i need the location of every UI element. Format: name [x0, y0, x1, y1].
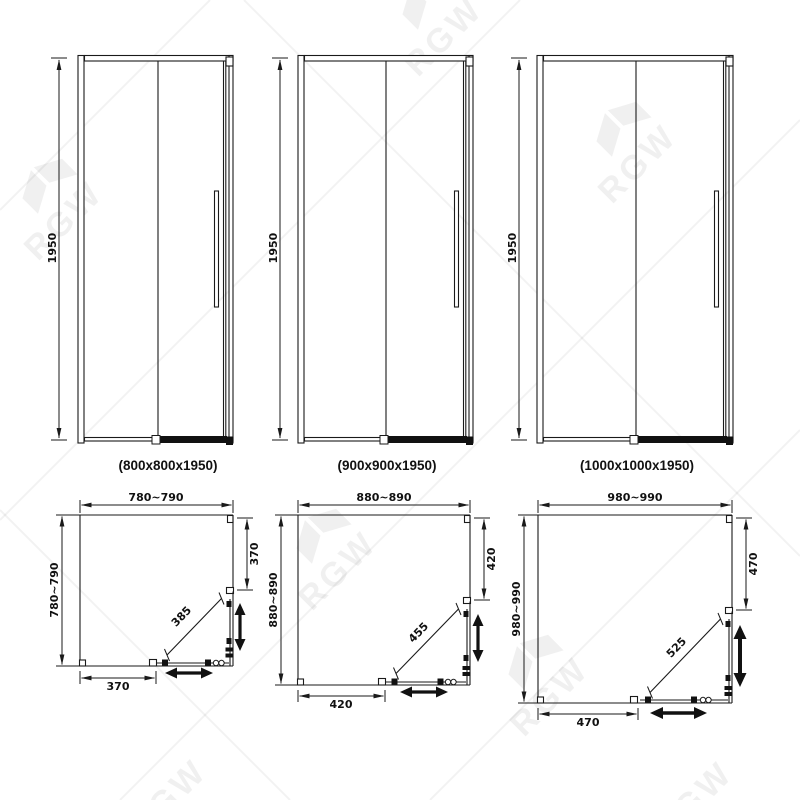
door-handle — [455, 191, 459, 307]
watermark-rgw: RGW — [121, 752, 215, 800]
sliding-door-open-position — [650, 619, 721, 693]
drawing-svg: RGW RGW RGW RGW RGW RGW RGW 1950 — [0, 0, 800, 800]
slide-direction-arrow-vertical — [235, 603, 246, 651]
bottom-roller — [380, 436, 388, 445]
slide-direction-arrow-vertical — [734, 625, 747, 687]
plan-depth-label: 980~990 — [510, 581, 523, 636]
right-frame-post — [229, 56, 233, 444]
size-caption: (1000x1000x1950) — [580, 458, 694, 473]
plan-depth-label: 780~790 — [48, 562, 61, 617]
plan-depth-label: 880~890 — [267, 572, 280, 627]
door-handle — [715, 191, 719, 307]
bottom-roller — [630, 436, 638, 445]
size-caption: (900x900x1950) — [337, 458, 436, 473]
elevation-view-900: 1950 (900x900x1950) — [267, 56, 473, 474]
size-caption: (800x800x1950) — [118, 458, 217, 473]
door-opening-label: 385 — [169, 604, 194, 630]
plan-width-label: 980~990 — [607, 491, 662, 504]
bottom-fixed-panel-label: 420 — [330, 698, 353, 711]
door-opening-label: 525 — [664, 635, 689, 661]
svg-text:RGW: RGW — [647, 754, 741, 800]
shower-enclosure-technical-drawing: RGW RGW RGW RGW RGW RGW RGW 1950 — [0, 0, 800, 800]
door-handle — [215, 191, 219, 307]
plan-width-label: 880~890 — [356, 491, 411, 504]
top-rail — [305, 56, 474, 62]
wall-profile — [537, 56, 543, 444]
bottom-fixed-panel-label: 470 — [577, 716, 600, 729]
right-frame-post — [469, 56, 473, 444]
sliding-door-open-position — [396, 609, 459, 674]
height-dimension-label: 1950 — [267, 232, 280, 263]
side-fixed-panel-label: 370 — [248, 542, 261, 565]
side-fixed-panel-label: 420 — [485, 547, 498, 570]
slide-direction-arrow-vertical — [473, 614, 484, 662]
wall-profile — [298, 56, 304, 444]
svg-text:RGW: RGW — [121, 752, 215, 800]
watermark-rgw: RGW — [563, 88, 685, 210]
top-rail — [85, 56, 234, 62]
plan-width-label: 780~790 — [128, 491, 183, 504]
side-fixed-panel-label: 470 — [747, 552, 760, 575]
slide-direction-arrow-horizontal — [400, 687, 448, 698]
wall-profile — [78, 56, 84, 444]
bottom-roller — [152, 436, 160, 445]
elevation-view-800: 1950 (800x800x1950) — [46, 56, 233, 474]
slide-direction-arrow-horizontal — [650, 707, 707, 719]
bottom-fixed-panel-label: 370 — [107, 680, 130, 693]
top-rail — [544, 56, 734, 62]
slide-direction-arrow-horizontal — [165, 668, 213, 679]
height-dimension-label: 1950 — [506, 232, 519, 263]
right-frame-post — [729, 56, 733, 444]
watermark-rgw: RGW — [647, 754, 741, 800]
plan-view-800: 780~790 780~790 370 385 — [48, 491, 261, 693]
height-dimension-label: 1950 — [46, 232, 59, 263]
